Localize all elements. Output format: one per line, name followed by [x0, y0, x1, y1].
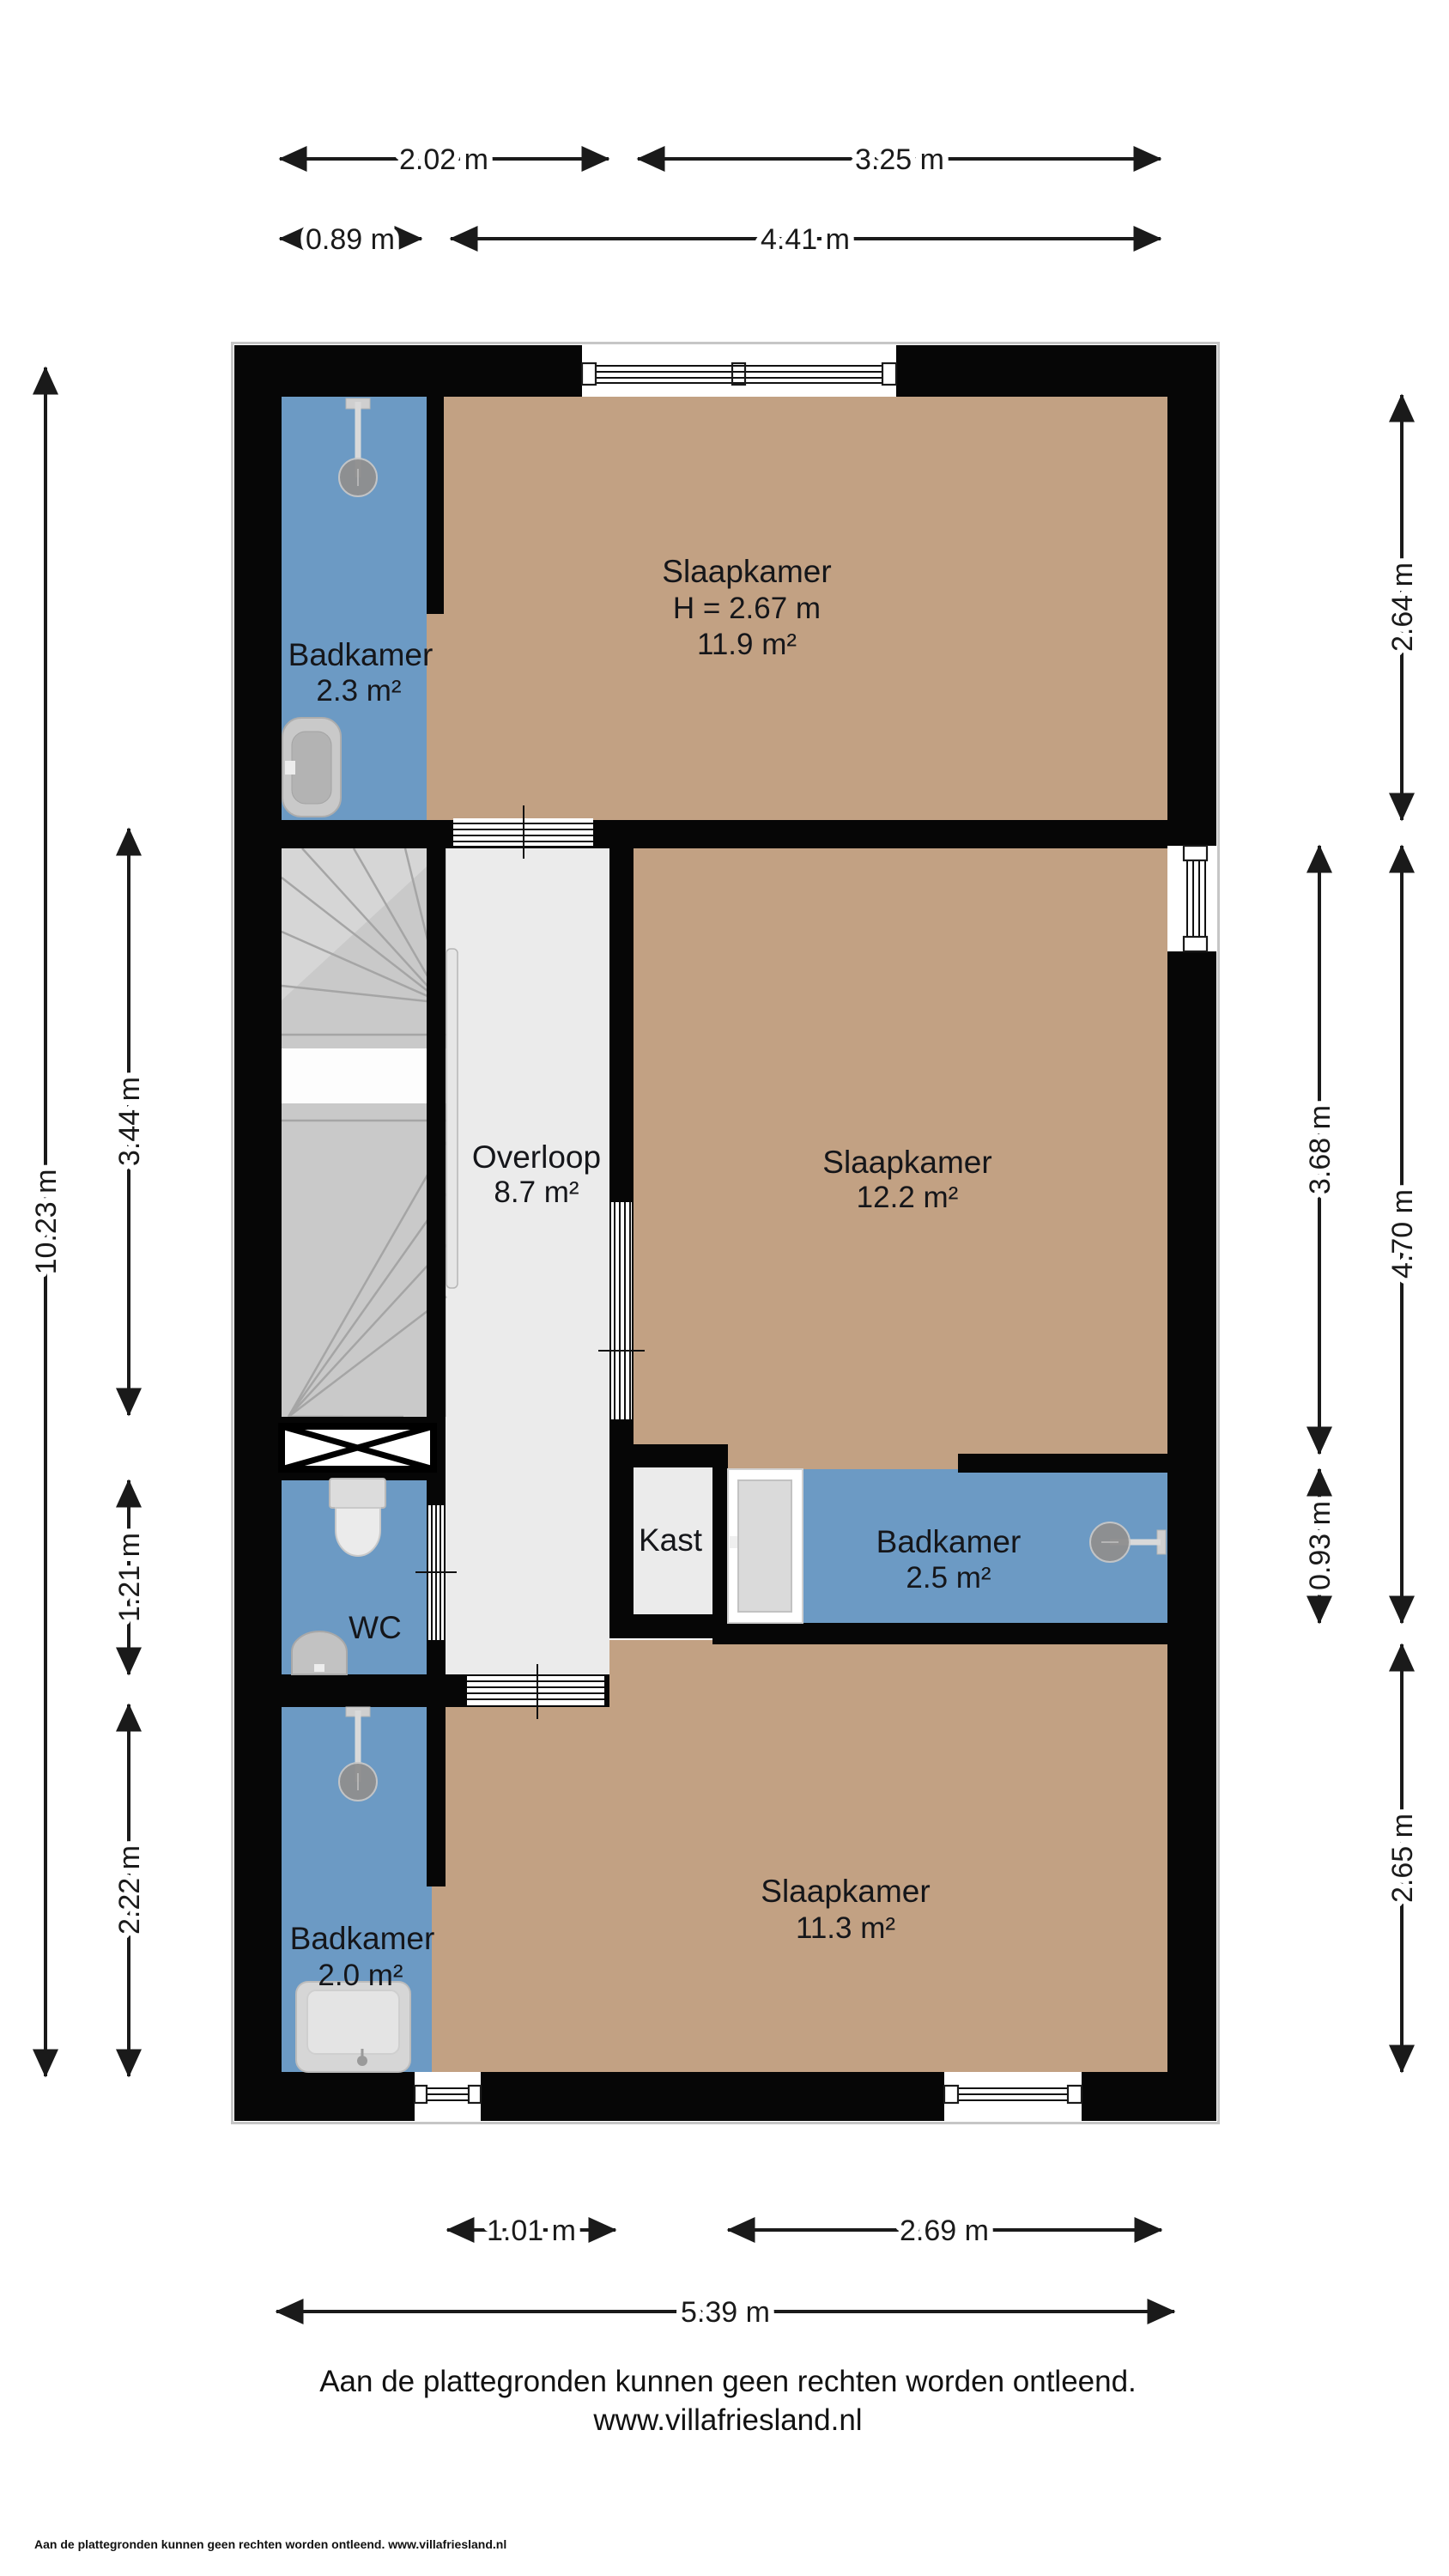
wall-left: [234, 345, 282, 2121]
label-badkamer-top: Badkamer: [288, 637, 433, 672]
wall-divider-top: [282, 820, 1167, 848]
label-slaapkamer-bottom: Slaapkamer: [761, 1874, 930, 1909]
dim-right-badkamer: 0.93 m: [1304, 1469, 1337, 1623]
svg-text:3.25 m: 3.25 m: [855, 143, 944, 176]
label-slaapkamer-mid: Slaapkamer: [822, 1145, 991, 1180]
wall-badkamer-top-stub: [427, 397, 444, 614]
svg-text:2.69 m: 2.69 m: [900, 2215, 989, 2247]
dim-left-badkamer: 2.22 m: [113, 1704, 146, 2076]
wall-right: [1167, 345, 1216, 2121]
svg-text:0.93 m: 0.93 m: [1304, 1501, 1337, 1590]
label-badkamer-bottom-area: 2.0 m²: [318, 1959, 403, 1992]
label-badkamer-bottom: Badkamer: [290, 1921, 435, 1956]
void-shaft-icon: [282, 1426, 433, 1469]
label-badkamer-top-area: 2.3 m²: [316, 674, 401, 708]
label-badkamer-mid: Badkamer: [876, 1524, 1022, 1559]
label-wc: WC: [349, 1610, 402, 1645]
svg-text:2.22 m: 2.22 m: [113, 1845, 146, 1935]
label-slaapkamer-top: Slaapkamer: [662, 554, 831, 589]
dim-top-inner-left: 2.02 m: [280, 143, 609, 176]
window-right-icon: [1167, 846, 1216, 951]
dim-bottom-inner-right: 2.69 m: [728, 2215, 1161, 2247]
svg-text:2.02 m: 2.02 m: [399, 143, 488, 176]
label-kast: Kast: [639, 1522, 703, 1558]
dim-bottom-outer: 5.39 m: [276, 2296, 1174, 2329]
wc-sink-icon: [292, 1631, 347, 1674]
dim-left-wc: 1.21 m: [113, 1480, 146, 1674]
footer-disclaimer: Aan de plattegronden kunnen geen rechten…: [319, 2365, 1137, 2398]
label-slaapkamer-top-height: H = 2.67 m: [673, 592, 821, 625]
label-overloop: Overloop: [472, 1139, 601, 1175]
dim-top-outer-left: 0.89 m: [280, 223, 421, 256]
label-slaapkamer-top-area: 11.9 m²: [697, 628, 797, 661]
svg-text:1.01 m: 1.01 m: [487, 2215, 576, 2247]
dim-bottom-inner-left: 1.01 m: [447, 2215, 615, 2247]
label-overloop-area: 8.7 m²: [494, 1176, 579, 1209]
label-badkamer-mid-area: 2.5 m²: [906, 1561, 991, 1595]
svg-text:2.64 m: 2.64 m: [1386, 562, 1419, 652]
dim-right-top: 2.64 m: [1386, 395, 1419, 820]
svg-text:4.70 m: 4.70 m: [1386, 1189, 1419, 1279]
stairs-landing: [282, 1048, 446, 1103]
svg-text:0.89 m: 0.89 m: [306, 223, 395, 256]
svg-text:5.39 m: 5.39 m: [681, 2296, 770, 2329]
window-bottom-left-icon: [415, 2072, 481, 2121]
wall-badkamer-mid-bottom: [712, 1623, 1167, 1644]
wall-kast-right: [712, 1444, 728, 1638]
label-slaapkamer-mid-area: 12.2 m²: [857, 1181, 959, 1214]
dim-right-bottom: 2.65 m: [1386, 1644, 1419, 2072]
window-bottom-right-icon: [944, 2072, 1082, 2121]
label-slaapkamer-bottom-area: 11.3 m²: [796, 1911, 895, 1945]
dim-left-stairs: 3.44 m: [113, 829, 146, 1415]
sink-icon: [296, 1982, 410, 2072]
footer: Aan de plattegronden kunnen geen rechten…: [319, 2365, 1137, 2437]
stairs-railing: [446, 949, 458, 1288]
wall-kast-top: [609, 1444, 728, 1467]
dim-top-outer-right: 4.41 m: [451, 223, 1161, 256]
dim-right-mid-inner: 3.68 m: [1304, 846, 1337, 1454]
svg-text:4.41 m: 4.41 m: [761, 223, 850, 256]
floorplan-page: Slaapkamer H = 2.67 m 11.9 m² Badkamer 2…: [0, 0, 1449, 2576]
dim-top-inner-right: 3.25 m: [638, 143, 1161, 176]
svg-text:2.65 m: 2.65 m: [1386, 1814, 1419, 1903]
bathtub-icon: [282, 718, 341, 817]
dim-left-total: 10.23 m: [30, 368, 63, 2076]
svg-text:10.23 m: 10.23 m: [30, 1170, 63, 1275]
floor-overloop: [446, 848, 609, 1686]
svg-text:3.44 m: 3.44 m: [113, 1077, 146, 1166]
floorplan-canvas: Slaapkamer H = 2.67 m 11.9 m² Badkamer 2…: [0, 0, 1449, 2576]
wall-badkamer-mid-top: [958, 1454, 1167, 1473]
svg-text:3.68 m: 3.68 m: [1304, 1105, 1337, 1194]
svg-text:1.21 m: 1.21 m: [113, 1533, 146, 1622]
shower-tray-icon: [728, 1469, 803, 1623]
footer-small-print: Aan de plattegronden kunnen geen rechten…: [34, 2537, 506, 2551]
footer-website: www.villafriesland.nl: [592, 2403, 862, 2437]
dim-right-mid-outer: 4.70 m: [1386, 846, 1419, 1623]
window-top-icon: [582, 345, 896, 397]
wall-wc-right: [427, 820, 446, 1886]
wall-kast-bottom: [609, 1614, 728, 1638]
